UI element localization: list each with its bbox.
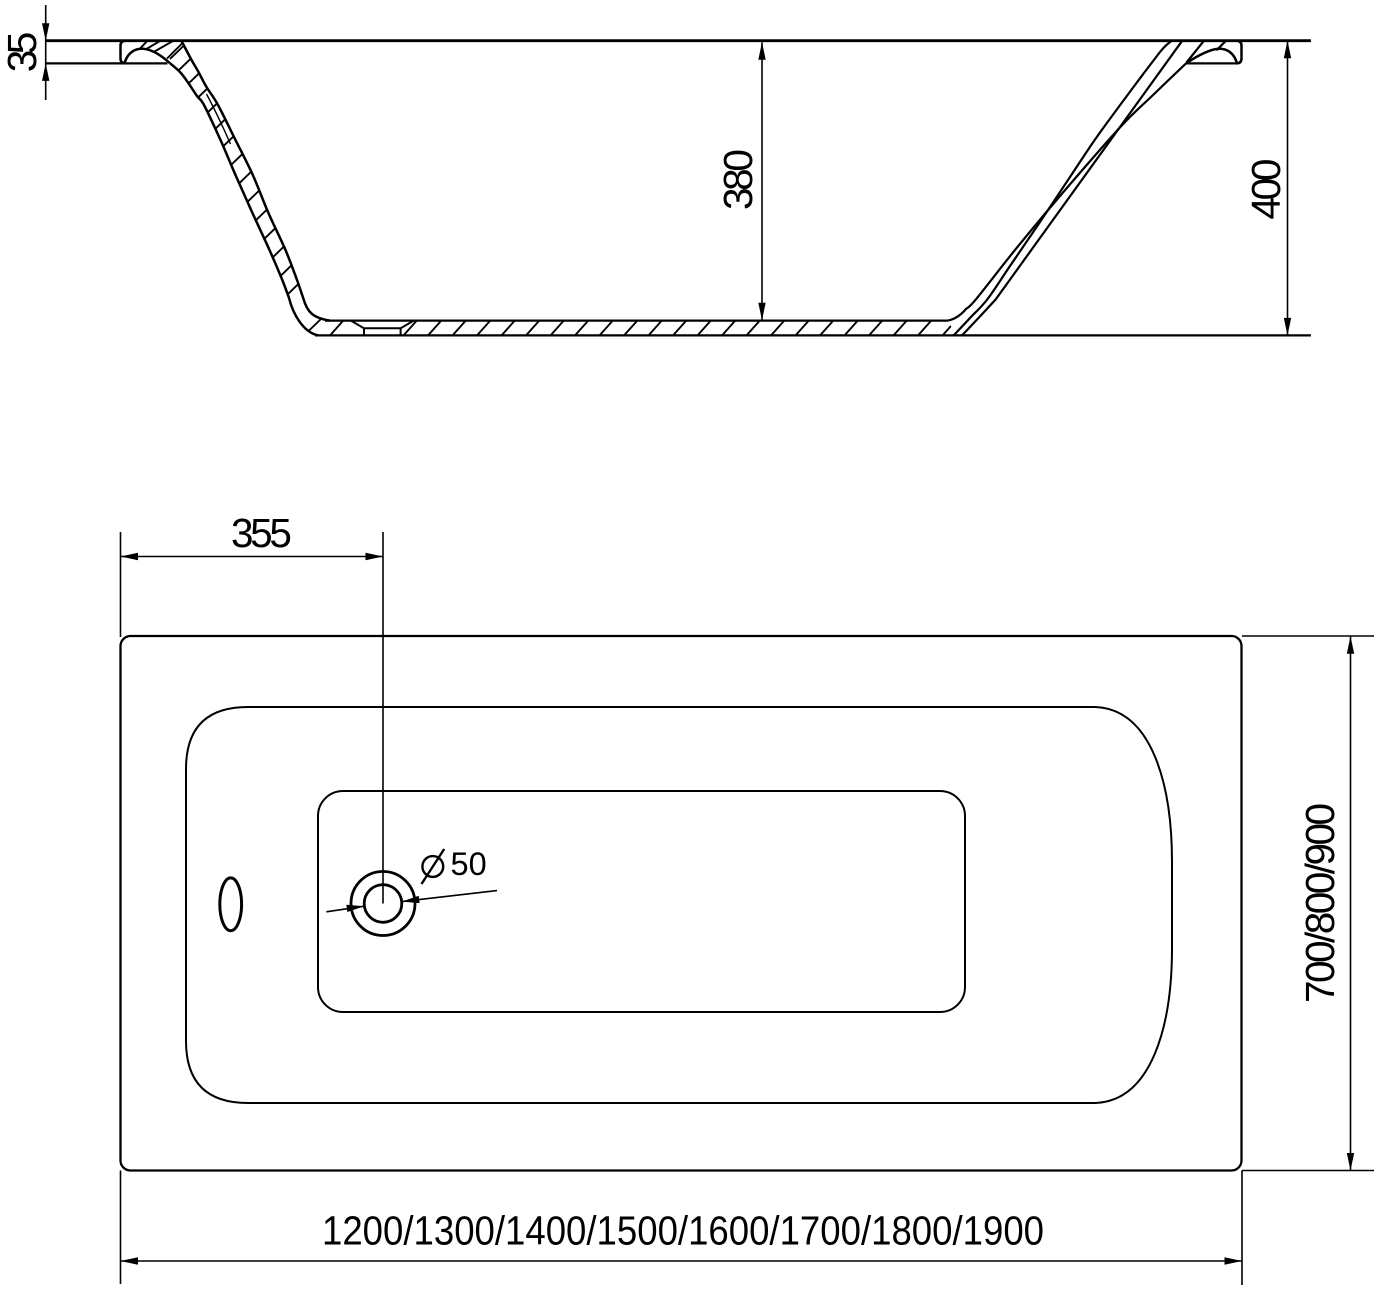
svg-text:400: 400	[1243, 159, 1289, 220]
svg-text:355: 355	[231, 510, 292, 556]
svg-text:50: 50	[451, 846, 487, 882]
svg-text:380: 380	[715, 149, 761, 210]
svg-text:1200/1300/1400/1500/1600/1700/: 1200/1300/1400/1500/1600/1700/1800/1900	[322, 1208, 1044, 1254]
svg-text:700/800/900: 700/800/900	[1297, 803, 1343, 1003]
svg-text:35: 35	[0, 32, 45, 73]
